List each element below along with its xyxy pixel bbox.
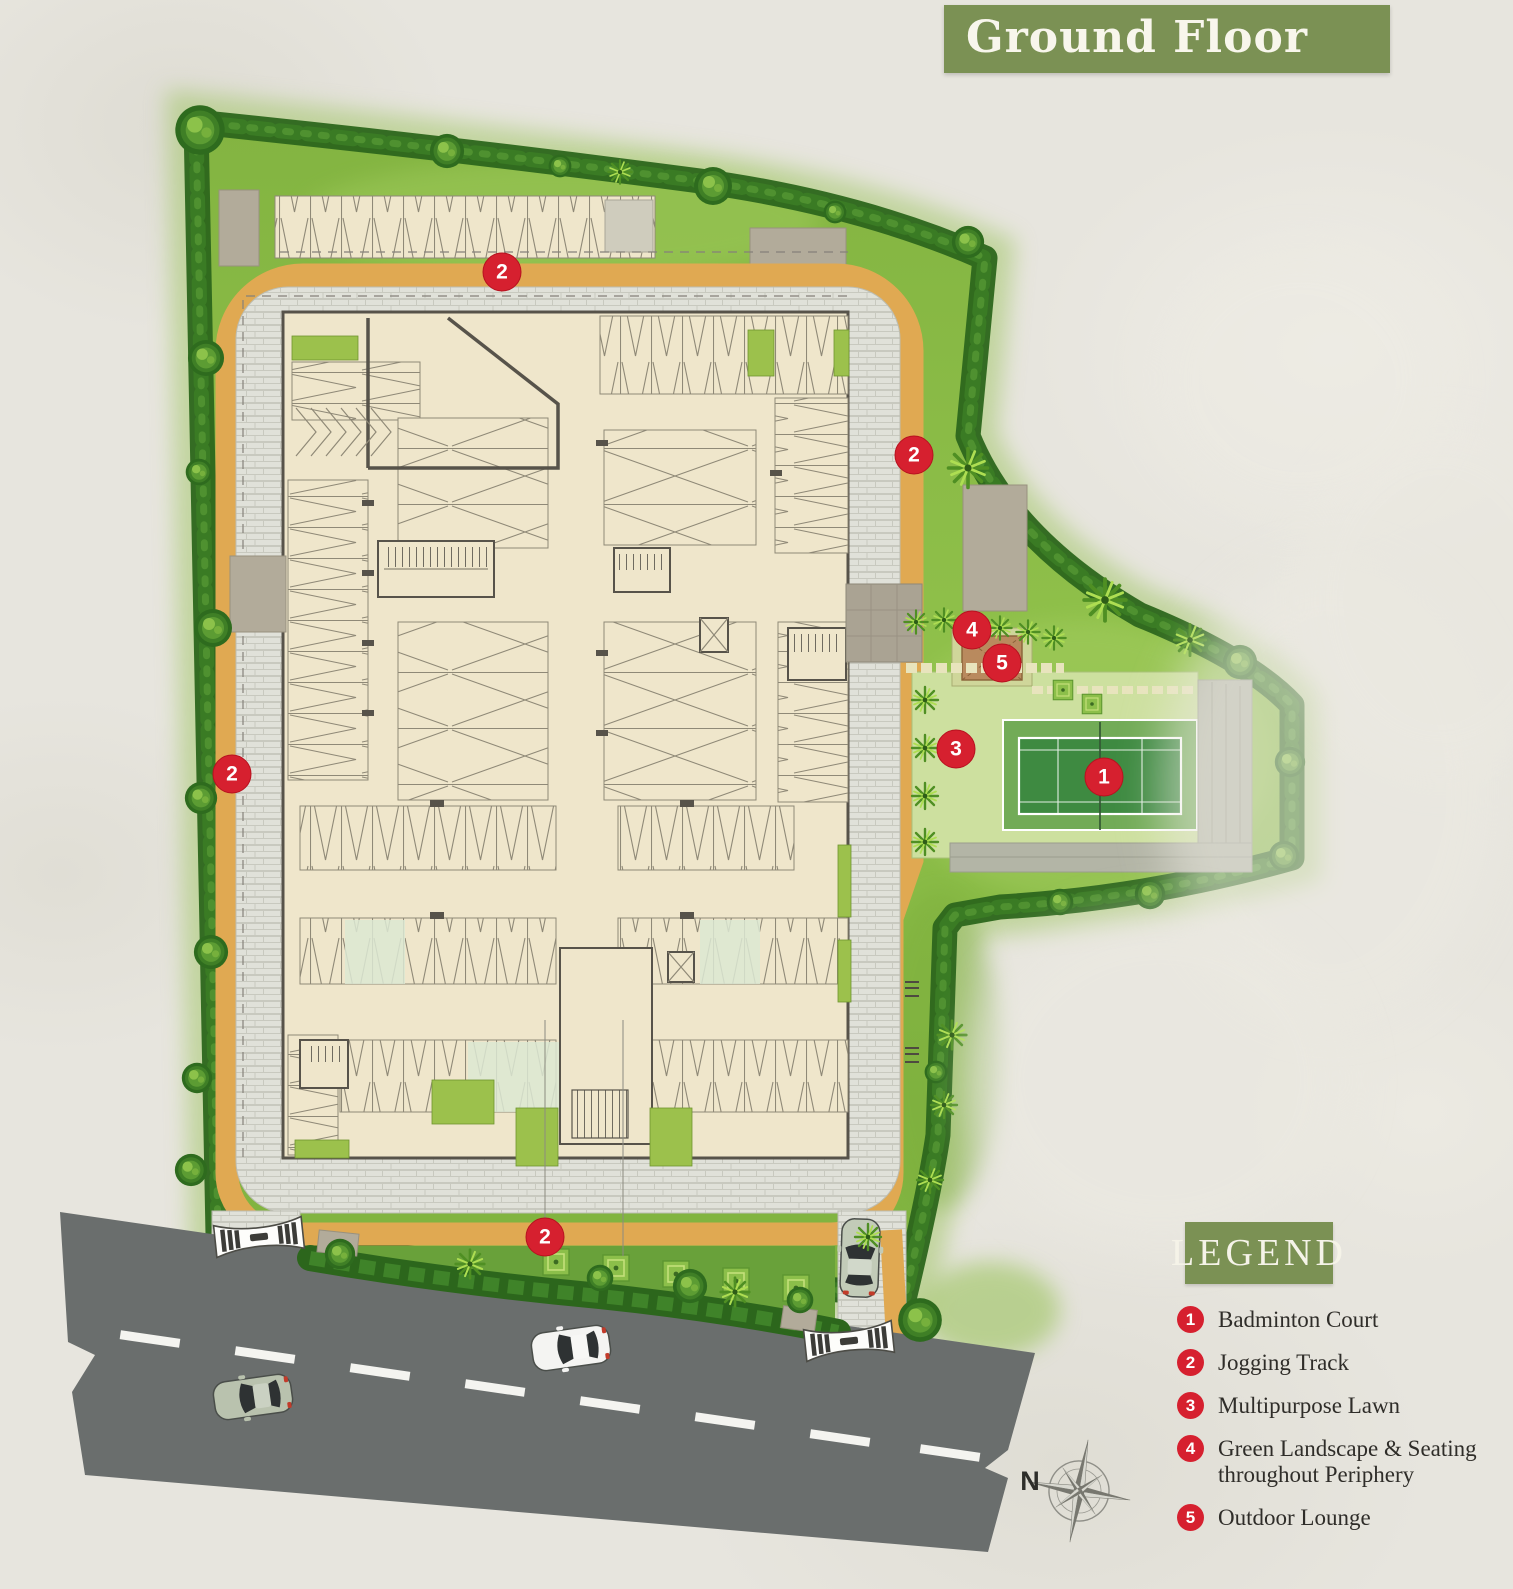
svg-text:2: 2: [539, 1226, 551, 1249]
marker-jogging-track: 2: [526, 1218, 564, 1256]
legend-item-label: Jogging Track: [1218, 1349, 1349, 1376]
marker-green-landscape: 4: [953, 611, 991, 649]
legend-item-number: 4: [1177, 1435, 1204, 1462]
marker-jogging-track: 2: [213, 755, 251, 793]
legend-item-number: 2: [1177, 1349, 1204, 1376]
compass-north-label: N: [1020, 1466, 1040, 1496]
page-title: Ground Floor: [944, 5, 1390, 73]
legend-item: 3 Multipurpose Lawn: [1177, 1392, 1503, 1419]
lawn-motif: [1053, 680, 1073, 700]
svg-text:5: 5: [996, 652, 1008, 675]
utility-block: [230, 556, 286, 632]
legend-item: 2 Jogging Track: [1177, 1349, 1503, 1376]
legend-item-number: 1: [1177, 1306, 1204, 1333]
compass-rose: N: [1019, 1431, 1139, 1551]
utility-block: [750, 228, 846, 268]
building-footprint: [283, 312, 851, 1166]
marker-multipurpose-lawn: 3: [937, 730, 975, 768]
svg-text:2: 2: [496, 261, 508, 284]
legend-item-label: Badminton Court: [1218, 1306, 1378, 1333]
legend-item: 5 Outdoor Lounge: [1177, 1504, 1503, 1531]
utility-block: [219, 190, 259, 266]
legend-panel: LEGEND 1 Badminton Court 2 Jogging Track…: [1177, 1222, 1503, 1547]
marker-outdoor-lounge: 5: [983, 644, 1021, 682]
svg-text:2: 2: [226, 763, 238, 786]
legend-item-number: 5: [1177, 1504, 1204, 1531]
svg-text:3: 3: [950, 738, 962, 761]
legend-heading: LEGEND: [1185, 1222, 1333, 1284]
marker-badminton-court: 1: [1085, 758, 1123, 796]
legend-item-label: Multipurpose Lawn: [1218, 1392, 1400, 1419]
svg-text:1: 1: [1098, 766, 1110, 789]
legend-item: 1 Badminton Court: [1177, 1306, 1503, 1333]
lawn-motif: [1082, 694, 1102, 714]
legend-items: 1 Badminton Court 2 Jogging Track 3 Mult…: [1177, 1306, 1503, 1531]
svg-text:2: 2: [908, 444, 920, 467]
legend-item-label: Green Landscape & Seating throughout Per…: [1218, 1435, 1490, 1488]
svg-text:4: 4: [966, 619, 978, 642]
legend-item: 4 Green Landscape & Seating throughout P…: [1177, 1435, 1503, 1488]
legend-item-number: 3: [1177, 1392, 1204, 1419]
marker-jogging-track: 2: [895, 436, 933, 474]
marker-jogging-track: 2: [483, 253, 521, 291]
utility-block: [963, 485, 1027, 611]
legend-item-label: Outdoor Lounge: [1218, 1504, 1371, 1531]
